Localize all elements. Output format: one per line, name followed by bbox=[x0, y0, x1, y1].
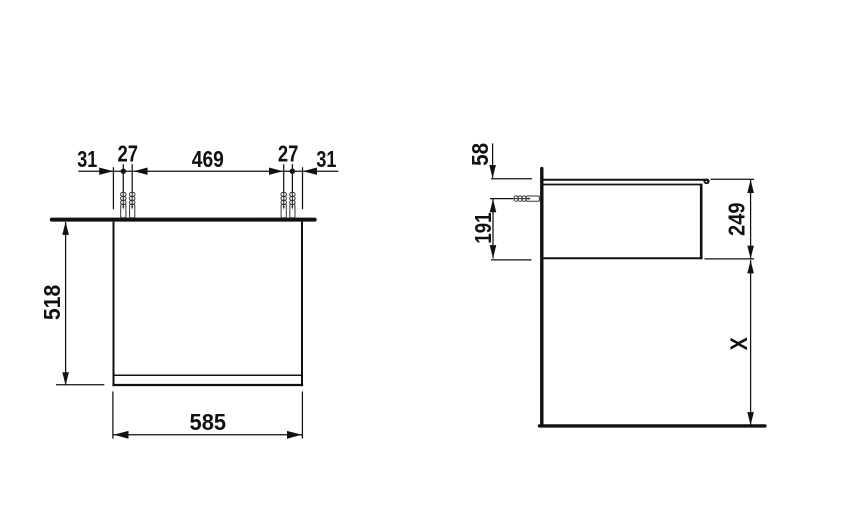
svg-text:31: 31 bbox=[77, 146, 97, 172]
svg-text:191: 191 bbox=[470, 213, 496, 244]
svg-text:27: 27 bbox=[278, 141, 299, 167]
svg-text:585: 585 bbox=[190, 409, 227, 435]
svg-text:518: 518 bbox=[39, 285, 65, 321]
svg-text:27: 27 bbox=[117, 141, 138, 167]
svg-text:X: X bbox=[726, 337, 753, 351]
svg-text:31: 31 bbox=[316, 146, 336, 172]
svg-text:58: 58 bbox=[467, 143, 493, 166]
svg-text:249: 249 bbox=[724, 202, 750, 236]
svg-text:469: 469 bbox=[192, 146, 224, 172]
